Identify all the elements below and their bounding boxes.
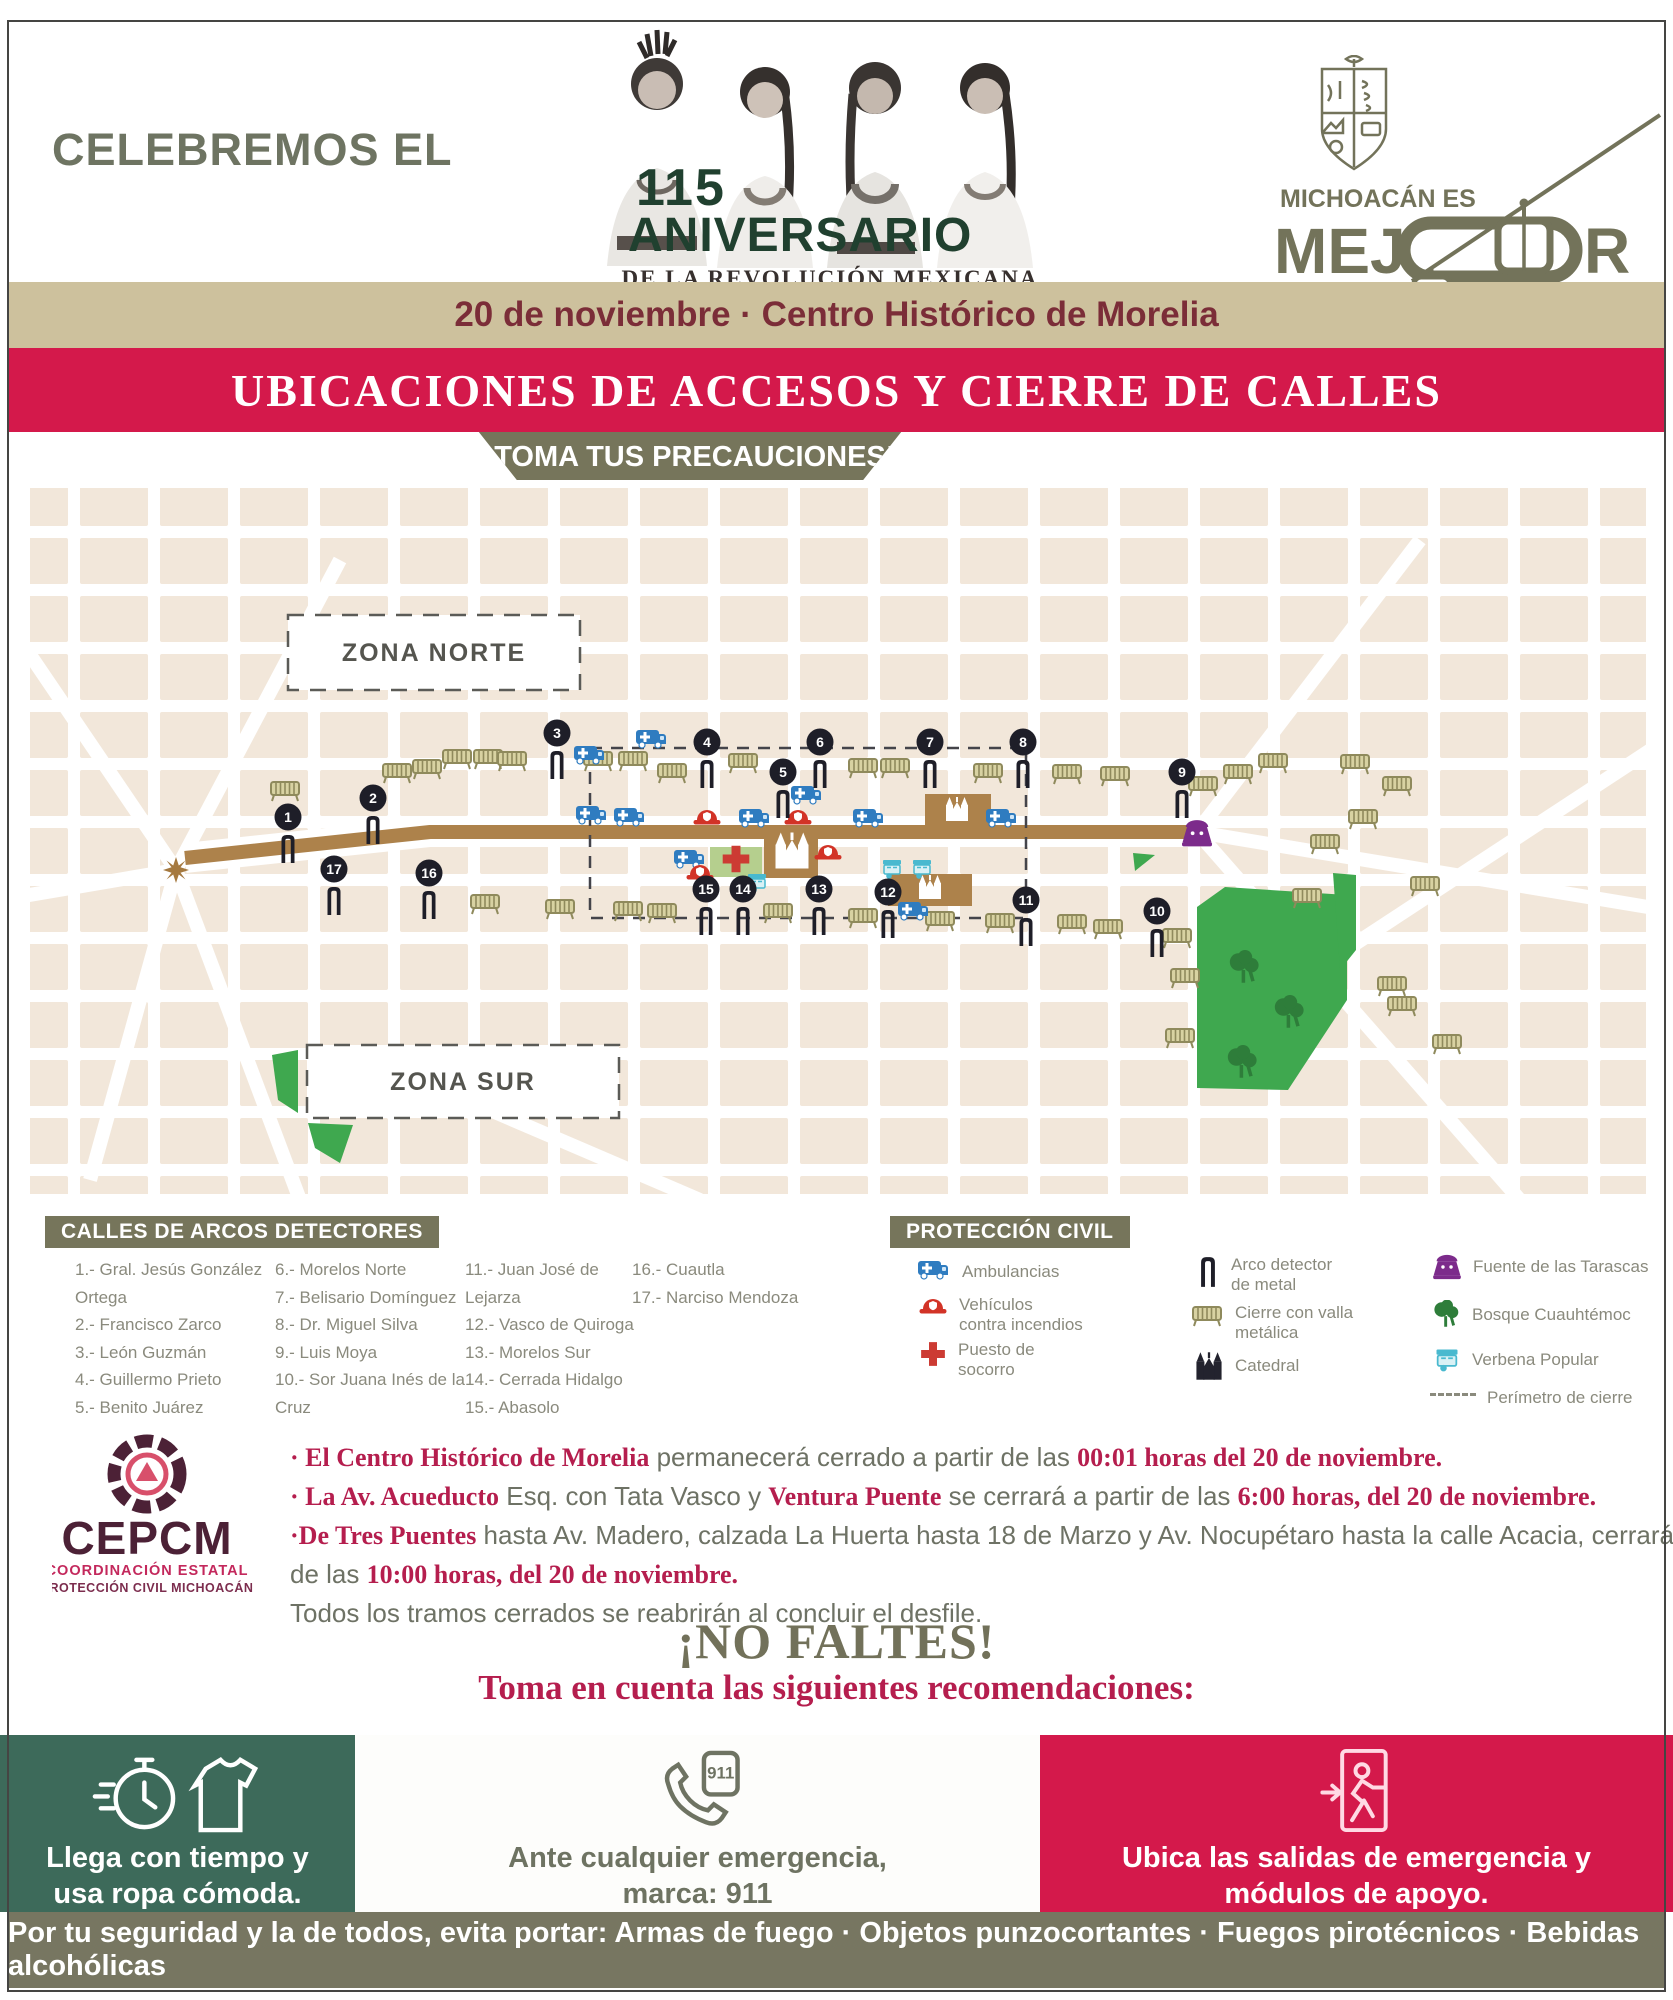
closure-text: se cerrará a partir de las — [941, 1481, 1237, 1511]
fire-helmet-icon — [918, 1295, 948, 1321]
street-item: 11.- Juan José de Lejarza — [465, 1256, 635, 1311]
panel-line: Llega con tiempo y — [46, 1840, 309, 1876]
legend-item: Perímetro de cierre — [1430, 1384, 1660, 1408]
streets-col3: 11.- Juan José de Lejarza12.- Vasco de Q… — [465, 1256, 635, 1421]
street-item: 13.- Morelos Sur — [465, 1339, 635, 1367]
phone-911-icon: 911 — [648, 1745, 748, 1836]
street-item: 7.- Belisario Domínguez — [275, 1284, 470, 1312]
streets-col2: 6.- Morelos Norte7.- Belisario Domínguez… — [275, 1256, 470, 1421]
warning-banner: ¡TOMA TUS PRECAUCIONES! — [470, 432, 910, 482]
panel-line: marca: 911 — [508, 1876, 887, 1912]
street-item: 16.- Cuautla — [632, 1256, 802, 1284]
poster: CELEBREMOS EL — [0, 0, 1673, 2000]
dashed-line-icon — [1430, 1393, 1476, 1396]
streets-legend-title: CALLES DE ARCOS DETECTORES — [45, 1216, 439, 1248]
stopwatch-shirt-icon — [78, 1745, 278, 1836]
panel-text: Ubica las salidas de emergencia ymódulos… — [1122, 1840, 1591, 1912]
svg-text:6: 6 — [816, 734, 824, 750]
closure-highlight: ·De Tres Puentes — [290, 1521, 476, 1550]
street-item: 1.- Gral. Jesús González Ortega — [75, 1256, 275, 1311]
brand-word-post: R — [1584, 215, 1630, 285]
panel-emergency-call: 911 Ante cualquier emergencia,marca: 911 — [355, 1735, 1040, 1912]
church-icon — [946, 797, 968, 821]
emergency-exit-icon — [1312, 1745, 1402, 1836]
legend-item: Vehículos contra incendios — [918, 1295, 1098, 1335]
closure-highlight: Ventura Puente — [768, 1482, 941, 1511]
street-item: 10.- Sor Juana Inés de la Cruz — [275, 1366, 470, 1421]
svg-text:8: 8 — [1019, 734, 1027, 750]
date-banner-text: 20 de noviembre · Centro Histórico de Mo… — [454, 295, 1218, 335]
legend-item: Fuente de las Tarascas — [1432, 1252, 1662, 1282]
svg-text:2: 2 — [369, 790, 377, 806]
headline: CELEBREMOS EL — [52, 124, 453, 176]
ambulance-icon — [915, 1258, 951, 1286]
safety-footer: Por tu seguridad y la de todos, evita po… — [8, 1912, 1665, 1988]
closure-text: permanecerá cerrado a partir de las — [649, 1442, 1077, 1472]
svg-text:10: 10 — [1149, 903, 1165, 919]
closure-highlight: 6:00 horas, del 20 de noviembre. — [1238, 1482, 1596, 1511]
notice-line: ·De Tres Puentes hasta Av. Madero, calza… — [290, 1516, 1665, 1555]
date-banner: 20 de noviembre · Centro Histórico de Mo… — [8, 282, 1665, 348]
street-item: 15.- Abasolo — [465, 1394, 635, 1422]
street-item: 14.- Cerrada Hidalgo — [465, 1366, 635, 1394]
cepcm-line2: PROTECCIÓN CIVIL MICHOACÁN — [52, 1580, 253, 1595]
closure-highlight: 00:01 horas del 20 de noviembre. — [1077, 1443, 1442, 1472]
street-item: 9.- Luis Moya — [275, 1339, 470, 1367]
zona-norte-label: ZONA NORTE — [342, 639, 526, 667]
phone-badge: 911 — [707, 1764, 734, 1783]
legend-item: Catedral — [1194, 1350, 1384, 1382]
legend-item: Arco detector de metal — [1196, 1255, 1386, 1295]
svg-text:7: 7 — [926, 734, 934, 750]
svg-text:13: 13 — [811, 881, 827, 897]
panel-line: Ubica las salidas de emergencia y — [1122, 1840, 1591, 1876]
notice-line: · La Av. Acueducto Esq. con Tata Vasco y… — [290, 1477, 1665, 1516]
route-start-star-icon — [163, 857, 189, 883]
street-item: 3.- León Guzmán — [75, 1339, 275, 1367]
closure-highlight: 10:00 horas, del 20 de noviembre. — [367, 1560, 738, 1589]
pc-legend-title: PROTECCIÓN CIVIL — [890, 1216, 1130, 1248]
closure-notices: · El Centro Histórico de Morelia permane… — [290, 1438, 1665, 1632]
no-faltes-title: ¡NO FALTES! — [0, 1612, 1673, 1670]
street-item: 8.- Dr. Miguel Silva — [275, 1311, 470, 1339]
legend-item: Bosque Cuauhtémoc — [1433, 1300, 1663, 1330]
closure-text: hasta Av. Madero, calzada La Huerta hast… — [476, 1520, 1673, 1550]
cepcm-line1: COORDINACIÓN ESTATAL — [52, 1561, 248, 1579]
street-item: 4.- Guillermo Prieto — [75, 1366, 275, 1394]
panel-arrive-early: Llega con tiempo yusa ropa cómoda. — [0, 1735, 355, 1912]
church-icon — [919, 875, 941, 899]
svg-text:11: 11 — [1019, 892, 1034, 908]
warning-banner-text: ¡TOMA TUS PRECAUCIONES! — [485, 441, 896, 474]
brand-line1: MICHOACÁN ES — [1280, 184, 1476, 213]
zona-norte-box: ZONA NORTE — [288, 615, 580, 690]
legend-item: Puesto de socorro — [919, 1340, 1099, 1380]
anniversary-title: ANIVERSARIO — [628, 208, 972, 263]
svg-text:1: 1 — [284, 809, 292, 825]
cathedral-icon — [1194, 1350, 1224, 1382]
svg-text:12: 12 — [880, 884, 896, 900]
panel-text: Llega con tiempo yusa ropa cómoda. — [46, 1840, 309, 1912]
panel-line: Ante cualquier emergencia, — [508, 1840, 887, 1876]
closure-highlight: · El Centro Histórico de Morelia — [290, 1443, 649, 1472]
closure-text: de las — [290, 1559, 367, 1589]
svg-text:4: 4 — [703, 734, 711, 750]
zona-sur-label: ZONA SUR — [390, 1068, 536, 1096]
street-item: 6.- Morelos Norte — [275, 1256, 470, 1284]
panel-line: usa ropa cómoda. — [46, 1876, 309, 1912]
notice-line: · El Centro Histórico de Morelia permane… — [290, 1438, 1665, 1477]
closure-highlight: · La Av. Acueducto — [290, 1482, 499, 1511]
legend-item: Ambulancias — [915, 1258, 1105, 1286]
street-cart-icon — [1433, 1346, 1461, 1374]
metal-barrier-icon — [1190, 1303, 1224, 1329]
street-item: 17.- Narciso Mendoza — [632, 1284, 802, 1312]
brand-word-pre: MEJ — [1274, 215, 1406, 285]
svg-text:5: 5 — [779, 764, 787, 780]
panel-text: Ante cualquier emergencia,marca: 911 — [508, 1840, 887, 1912]
notice-line: de las 10:00 horas, del 20 de noviembre. — [290, 1555, 1665, 1594]
streets-col1: 1.- Gral. Jesús González Ortega2.- Franc… — [75, 1256, 275, 1421]
cepcm-logo: CEPCM COORDINACIÓN ESTATAL PROTECCIÓN CI… — [52, 1430, 282, 1598]
street-item: 12.- Vasco de Quiroga — [465, 1311, 635, 1339]
recommendations-subtitle: Toma en cuenta las siguientes recomendac… — [0, 1668, 1673, 1708]
zona-sur-box: ZONA SUR — [307, 1045, 619, 1118]
safety-footer-text: Por tu seguridad y la de todos, evita po… — [8, 1917, 1665, 1983]
legend-item: Cierre con valla metálica — [1190, 1303, 1390, 1343]
metal-detector-arch-icon — [1196, 1255, 1220, 1289]
coat-of-arms-icon — [1322, 56, 1386, 169]
street-item: 2.- Francisco Zarco — [75, 1311, 275, 1339]
streets-col4: 16.- Cuautla17.- Narciso Mendoza — [632, 1256, 802, 1311]
legend-item: Verbena Popular — [1433, 1346, 1663, 1374]
svg-text:3: 3 — [553, 725, 561, 741]
svg-text:15: 15 — [698, 881, 714, 897]
street-closure-map: ZONA NORTE ZONA SUR 12345678910111213141… — [0, 480, 1673, 1210]
street-item: 5.- Benito Juárez — [75, 1394, 275, 1422]
title-banner: UBICACIONES DE ACCESOS Y CIERRE DE CALLE… — [8, 348, 1665, 432]
tree-icon — [1433, 1300, 1461, 1330]
fountain-icon — [1432, 1252, 1462, 1282]
panel-emergency-exits: Ubica las salidas de emergencia ymódulos… — [1040, 1735, 1673, 1912]
first-aid-cross-icon — [919, 1340, 947, 1368]
svg-text:9: 9 — [1178, 764, 1186, 780]
svg-text:14: 14 — [735, 881, 751, 897]
cepcm-acronym: CEPCM — [61, 1512, 232, 1564]
michoacan-es-mejor-logo: MICHOACÁN ES MEJ R — [1262, 55, 1667, 285]
svg-text:17: 17 — [326, 861, 342, 877]
closure-text: Esq. con Tata Vasco y — [499, 1481, 768, 1511]
svg-text:16: 16 — [421, 865, 437, 881]
cathedral-icon — [776, 833, 809, 869]
panel-line: módulos de apoyo. — [1122, 1876, 1591, 1912]
title-banner-text: UBICACIONES DE ACCESOS Y CIERRE DE CALLE… — [231, 364, 1442, 417]
